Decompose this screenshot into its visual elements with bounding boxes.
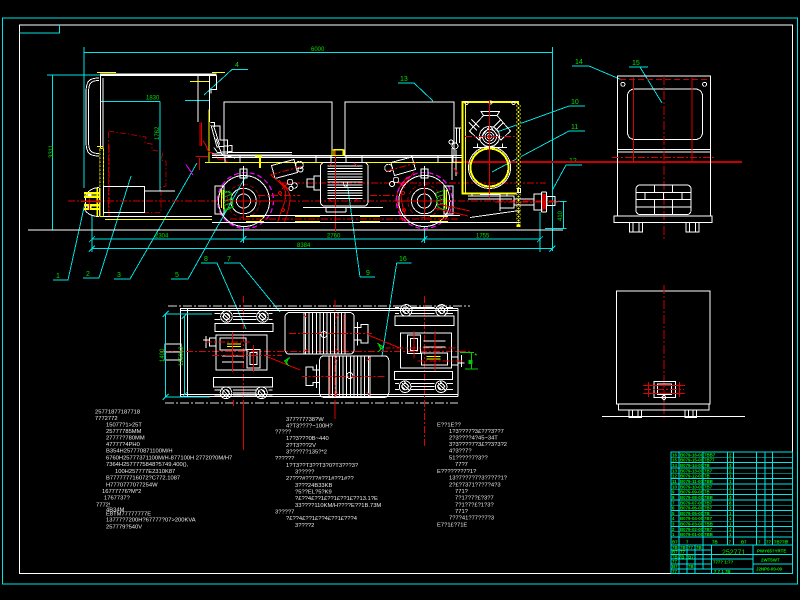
svg-text:7?7?41?77??7?3: 7?7?41?77??7?3 <box>449 516 494 522</box>
svg-text:9: 9 <box>366 270 370 277</box>
svg-text:2760: 2760 <box>327 234 341 240</box>
svg-text:?5??EL?5?K9: ?5??EL?5?K9 <box>295 490 332 496</box>
svg-text:15: 15 <box>672 458 677 463</box>
svg-text:B079-12-00: B079-12-00 <box>680 474 704 479</box>
svg-text:77: 77 <box>688 545 693 550</box>
svg-text:B079-09-00: B079-09-00 <box>680 490 704 495</box>
svg-text:13777?7200H?67777?07>200KVA: 13777?7200H?67777?07>200KVA <box>106 518 196 524</box>
svg-text:B079-10-00: B079-10-00 <box>680 484 704 489</box>
svg-text:B079-01-00: B079-01-00 <box>680 532 704 537</box>
svg-text:??????: ?????? <box>275 456 295 462</box>
svg-text:5: 5 <box>175 272 179 279</box>
svg-text:7B7: 7B7 <box>704 527 713 532</box>
svg-text:2304: 2304 <box>155 234 169 240</box>
svg-text:7?1?7?£?1?3?: 7?1?7?£?1?3? <box>455 502 494 508</box>
svg-text:16777776?M*2: 16777776?M*2 <box>102 489 141 495</box>
svg-text:13: 13 <box>672 468 677 473</box>
svg-text:7BB7: 7BB7 <box>704 452 716 457</box>
svg-text:25777785MM: 25777785MM <box>106 429 142 435</box>
svg-text:B079-08-00: B079-08-00 <box>680 495 704 500</box>
svg-text:77?7: 77?7 <box>455 462 468 468</box>
svg-text:3????7?135?*2: 3????7?135?*2 <box>286 450 327 456</box>
svg-text:E8TM77777777E: E8TM77777777E <box>106 512 151 518</box>
svg-text:252771: 252771 <box>722 550 745 557</box>
svg-text:410: 410 <box>558 210 564 221</box>
svg-text:B7: B7 <box>741 540 747 545</box>
svg-text:2?£?7371?7?7?4?3: 2?£?7371?7?7?4?3 <box>449 482 501 488</box>
svg-text:4?T3??7?~100H?: 4?T3??7?~100H? <box>286 424 333 430</box>
svg-text:B079-03-00: B079-03-00 <box>680 522 704 527</box>
svg-text:16: 16 <box>399 256 407 263</box>
svg-text:6760H25777371100M/H-877100H 27: 6760H25777371100M/H-877100H 27720?0M/H7 <box>106 455 232 461</box>
svg-text:27777?780MM: 27777?780MM <box>106 435 145 441</box>
svg-text:1: 1 <box>56 273 60 280</box>
svg-text:27???#??7?#??1#??1#??: 27???#??7?#??1#??1#?? <box>286 476 354 482</box>
svg-text:771?: 771? <box>455 509 469 515</box>
svg-text:1?T3??T3??T3?0?T3???3?: 1?T3??T3??T3?0?T3???3? <box>286 463 359 469</box>
svg-text:11: 11 <box>672 479 677 484</box>
svg-text:7BB: 7BB <box>704 495 713 500</box>
svg-text:2?T3???2V: 2?T3???2V <box>286 443 316 449</box>
svg-text:B079-15-00: B079-15-00 <box>680 458 704 463</box>
svg-text:B079-13-00: B079-13-00 <box>680 468 704 473</box>
svg-text:?£??4£??1£??1£??1£??13.1?E: ?£??4£??1£??1£??1£??13.1?E <box>295 496 378 502</box>
svg-text:17?3???0B~440: 17?3???0B~440 <box>286 436 329 442</box>
svg-text:7BB: 7BB <box>704 532 713 537</box>
svg-text:7B: 7B <box>704 474 710 479</box>
svg-text:E??1E??: E??1E?? <box>437 422 462 428</box>
svg-text:1755: 1755 <box>476 234 490 240</box>
svg-text:1762: 1762 <box>155 126 161 140</box>
svg-text:7B: 7B <box>688 564 694 569</box>
svg-text:1150±2: 1150±2 <box>179 346 185 366</box>
svg-text:100H257777E2310K87: 100H257777E2310K87 <box>115 469 175 475</box>
svg-text:B079-14-00: B079-14-00 <box>680 463 704 468</box>
svg-text:3311: 3311 <box>49 144 55 158</box>
svg-text:B079-07-00: B079-07-00 <box>680 500 704 505</box>
svg-text:B079-02-00: B079-02-00 <box>680 527 704 532</box>
svg-text:7B: 7B <box>696 545 702 550</box>
svg-text:3: 3 <box>117 272 121 279</box>
svg-text:3???24B33KB: 3???24B33KB <box>295 483 333 489</box>
svg-text:3????2: 3????2 <box>295 523 314 529</box>
svg-text:B079-05-00: B079-05-00 <box>680 511 704 516</box>
svg-text:7B: 7B <box>712 540 718 545</box>
svg-text:13?7??7?7?3?7?7?1?: 13?7??7?7?3?7?7?1? <box>449 476 508 482</box>
svg-text:47777?4PH0: 47777?4PH0 <box>106 442 140 448</box>
svg-text:77: 77 <box>766 540 771 545</box>
svg-text:?7???: ?7??? <box>275 430 292 436</box>
svg-text:771?: 771? <box>455 489 469 495</box>
svg-text:7: 7 <box>227 256 231 263</box>
svg-text:3?3????7?3£??3?3?2: 3?3????7?3£??3?3?2 <box>449 442 507 448</box>
svg-text:16: 16 <box>672 452 677 457</box>
svg-text:7B7: 7B7 <box>704 506 713 511</box>
svg-text:15077?1>25T: 15077?1>25T <box>106 422 142 428</box>
svg-text:7BB: 7BB <box>704 479 713 484</box>
svg-text:3?????: 3????? <box>295 470 315 476</box>
svg-text:7B7: 7B7 <box>704 468 713 473</box>
svg-text:PWY65?YRTE: PWY65?YRTE <box>757 548 786 553</box>
svg-text:11: 11 <box>571 124 578 131</box>
svg-text:1400: 1400 <box>160 348 166 362</box>
svg-text:7364H2577775848?5749.400(),: 7364H2577775848?5749.400(), <box>106 462 189 468</box>
svg-text:B079-06-00: B079-06-00 <box>680 506 704 511</box>
svg-text:8384: 8384 <box>297 243 311 249</box>
svg-text:H7770777077254W: H7770777077254W <box>106 482 158 488</box>
svg-text:12: 12 <box>672 474 677 479</box>
svg-text:E7?1£?71E: E7?1£?71E <box>437 522 467 528</box>
svg-text:B079-16-00: B079-16-00 <box>680 452 704 457</box>
svg-text:7B7: 7B7 <box>704 484 713 489</box>
svg-text:7BB: 7BB <box>704 522 713 527</box>
svg-text:7B7: 7B7 <box>704 516 713 521</box>
svg-text:E???????7?1?: E???????7?1? <box>437 469 477 475</box>
svg-text:1830: 1830 <box>146 96 160 102</box>
svg-text:7B77: 7B77 <box>704 458 715 463</box>
svg-text:4?3??7?: 4?3??7? <box>449 449 472 455</box>
svg-text:10: 10 <box>672 484 677 489</box>
svg-text:7B: 7B <box>704 511 710 516</box>
svg-text:1?3???7?3£?7?3??7: 1?3???7?3£?7?3??7 <box>449 429 504 435</box>
svg-text:B7: B7 <box>672 540 678 545</box>
svg-text:7B: 7B <box>704 490 710 495</box>
svg-text:B777777716072?C772.1087: B777777716072?C772.1087 <box>106 476 180 482</box>
svg-text:777? 1:7?: 777? 1:7? <box>713 559 734 564</box>
svg-text:13: 13 <box>400 76 408 83</box>
svg-text:1767737?: 1767737? <box>104 496 131 502</box>
svg-text:377?77738?W: 377?77738?W <box>286 417 324 423</box>
svg-text:B354H257770871100M/H: B354H257770871100M/H <box>106 449 173 455</box>
svg-text:10: 10 <box>571 99 579 106</box>
svg-text:2WT5WT: 2WT5WT <box>761 558 780 563</box>
svg-text:B079-11-00: B079-11-00 <box>680 479 704 484</box>
svg-text:14: 14 <box>575 59 583 66</box>
svg-text:15: 15 <box>632 60 640 67</box>
svg-text:25771877187718: 25771877187718 <box>95 410 140 416</box>
svg-text:B079-04-00: B079-04-00 <box>680 516 704 521</box>
svg-text:7772772: 7772772 <box>95 416 118 422</box>
svg-text:3????7: 3????7 <box>275 510 294 516</box>
svg-text:51?????7?3??: 51?????7?3?? <box>449 455 488 461</box>
svg-text:77: 77 <box>672 569 677 574</box>
svg-text:4: 4 <box>235 62 239 69</box>
svg-text:257779?540V: 257779?540V <box>106 524 142 530</box>
svg-text:7B7: 7B7 <box>704 500 713 505</box>
svg-text:J2NP0-00-00: J2NP0-00-00 <box>756 567 783 572</box>
svg-text:8: 8 <box>204 256 208 263</box>
svg-text:2?3????4?45~34T: 2?3????4?45~34T <box>449 435 498 441</box>
svg-text:6000: 6000 <box>311 47 325 53</box>
svg-text:2: 2 <box>86 271 90 278</box>
svg-text:7 7 1 7B: 7 7 1 7B <box>714 569 731 574</box>
svg-text:7?17?7?£?3?7: 7?17?7?£?3?7 <box>455 496 494 502</box>
svg-text:?£??4£??1£??4£??1£???4: ?£??4£??1£??4£??1£???4 <box>286 516 358 522</box>
svg-text:7B: 7B <box>704 463 710 468</box>
svg-text:14: 14 <box>672 463 677 468</box>
svg-text:33????110KM/H????E??1B.73M: 33????110KM/H????E??1B.73M <box>295 503 381 509</box>
